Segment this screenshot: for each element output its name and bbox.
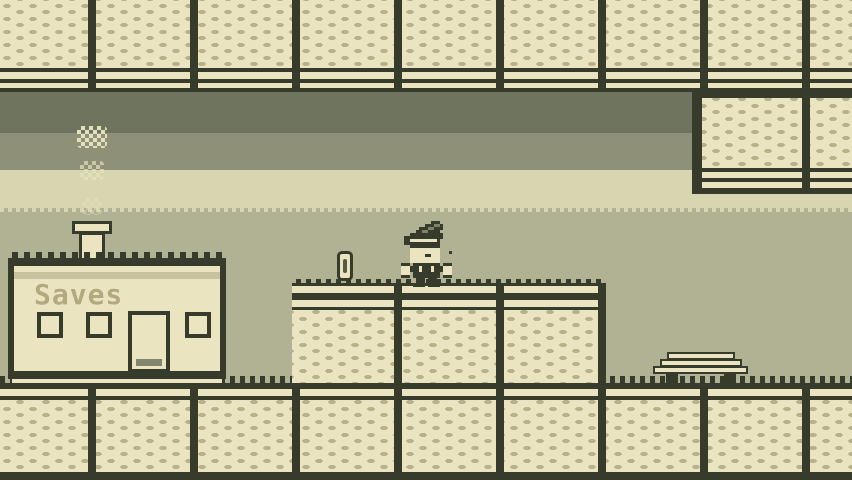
- game-viewport: Saves: [0, 0, 852, 480]
- roof-line: [8, 258, 226, 266]
- bench: [653, 352, 748, 383]
- player-character[interactable]: [401, 221, 452, 287]
- ceiling-hanging-section: [692, 92, 852, 194]
- bench-leg-left: [666, 373, 678, 383]
- platform-blocks: [292, 283, 606, 383]
- house-window-3: [185, 312, 211, 338]
- house-window-1: [37, 312, 63, 338]
- door-threshold: [136, 359, 162, 366]
- ground-block-row: [0, 383, 852, 480]
- chimney-cap: [72, 221, 112, 234]
- house-window-2: [86, 312, 112, 338]
- smoke-puff-3: [82, 198, 102, 215]
- house-base: [8, 371, 226, 379]
- coin[interactable]: [337, 251, 353, 281]
- coin-slit: [343, 259, 347, 273]
- house-door[interactable]: [128, 311, 170, 373]
- player-face: [410, 239, 452, 263]
- bench-leg-right: [724, 373, 736, 383]
- save-house: Saves: [8, 252, 226, 383]
- smoke-puff-1: [77, 126, 107, 148]
- house-sign: Saves: [34, 280, 154, 310]
- ceiling-block-row: [0, 0, 852, 92]
- player-body: [401, 263, 452, 287]
- smoke-puff-2: [80, 161, 104, 180]
